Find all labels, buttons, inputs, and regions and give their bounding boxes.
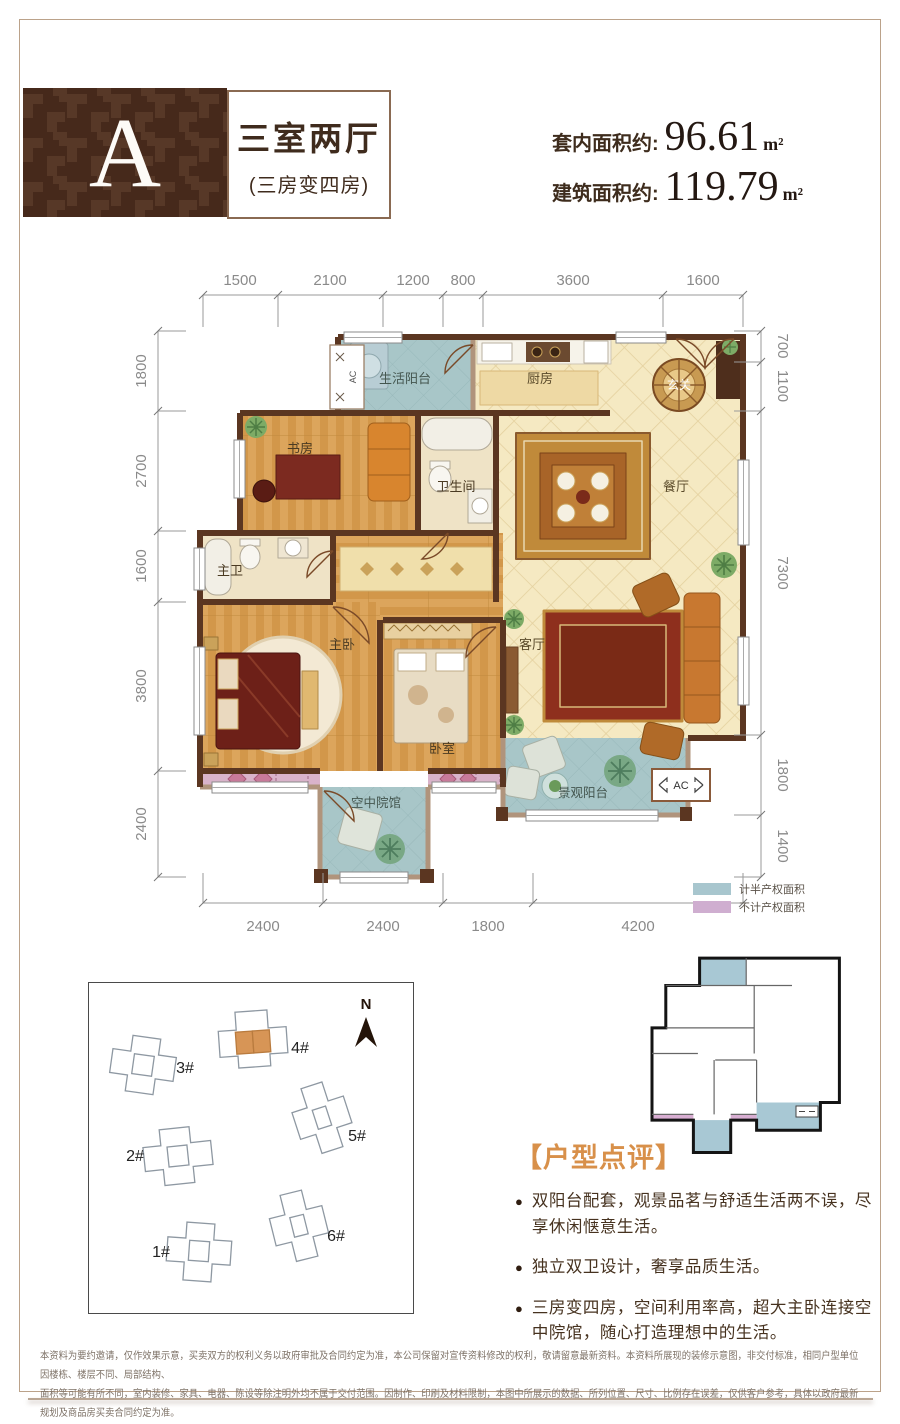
mini-floorplan bbox=[640, 946, 870, 1158]
dim-bottom-3: 4200 bbox=[621, 918, 654, 935]
building-label-1: 1# bbox=[152, 1244, 170, 1261]
ac-label: AC bbox=[673, 780, 688, 792]
dim-right-1: 1100 bbox=[774, 370, 790, 402]
room-label-bedroom: 卧室 bbox=[429, 741, 455, 756]
building-label-6: 6# bbox=[327, 1228, 345, 1245]
dim-left-0: 1800 bbox=[133, 354, 150, 387]
dim-top-2: 1200 bbox=[396, 272, 429, 289]
sink bbox=[472, 498, 488, 514]
review-bullet-text: 双阳台配套，观景品茗与舒适生活两不误，尽享休闲惬意生活。 bbox=[532, 1189, 883, 1240]
ac-box-bottom-right: AC bbox=[652, 769, 710, 801]
master-sink bbox=[285, 540, 301, 556]
building-2 bbox=[141, 1125, 214, 1188]
review-bullet-1: ● 双阳台配套，观景品茗与舒适生活两不误，尽享休闲惬意生活。 bbox=[515, 1189, 883, 1240]
unit-badge: A bbox=[23, 88, 227, 217]
legend-label: 计半产权面积 bbox=[739, 881, 805, 897]
building-label-3: 3# bbox=[176, 1060, 194, 1077]
legend-swatch-blue bbox=[693, 883, 731, 895]
north-label: N bbox=[361, 996, 372, 1013]
dim-bottom-1: 2400 bbox=[366, 918, 399, 935]
area-info: 套内面积约: 96.61 m² 建筑面积约: 119.79 m² bbox=[552, 116, 803, 216]
dim-right-0: 700 bbox=[774, 333, 790, 358]
mini-fills bbox=[652, 958, 820, 1153]
disclaimer: 本资料为要约邀请，仅作效果示意，买卖双方的权利义务以政府审批及合同约定为准，本公… bbox=[40, 1347, 864, 1423]
dim-left-1: 2700 bbox=[133, 454, 150, 487]
review-bullet-text: 三房变四房，空间利用率高，超大主卧连接空中院馆，随心打造理想中的生活。 bbox=[532, 1296, 883, 1347]
ac-label: AC bbox=[348, 370, 358, 383]
dim-top-0: 1500 bbox=[223, 272, 256, 289]
study-sofa bbox=[368, 423, 410, 501]
legend-row-half-property: 计半产权面积 bbox=[693, 880, 805, 898]
dim-right-3: 1800 bbox=[774, 758, 790, 791]
dim-bottom-2: 1800 bbox=[471, 918, 504, 935]
layout-title: 三室两厅 bbox=[237, 112, 381, 160]
building-3 bbox=[107, 1033, 178, 1097]
disclaimer-line-2: 面积等可能有所不同，室内装修、家具、电器、陈设等除注明外均不属于交付范围。因制作… bbox=[40, 1385, 864, 1423]
dining-set bbox=[516, 433, 650, 559]
review-bullet-text: 独立双卫设计，奢享品质生活。 bbox=[532, 1255, 770, 1281]
dim-left-3: 3800 bbox=[133, 669, 150, 702]
dim-left-2: 1600 bbox=[133, 549, 150, 582]
room-label-life-balcony: 生活阳台 bbox=[379, 371, 431, 386]
room-label-bathroom: 卫生间 bbox=[436, 479, 475, 494]
gross-area-row: 建筑面积约: 119.79 m² bbox=[552, 166, 803, 214]
study-desk bbox=[276, 455, 340, 499]
dim-top-1: 2100 bbox=[313, 272, 346, 289]
unit-letter: A bbox=[23, 88, 227, 217]
gross-area-unit: m² bbox=[783, 184, 803, 205]
room-label-kitchen: 厨房 bbox=[527, 371, 553, 386]
siteplan-drawing: 3# 4# 5# 2# 6# 1# N bbox=[89, 983, 411, 1311]
bottom-divider bbox=[28, 1398, 873, 1400]
bathtub bbox=[422, 418, 492, 450]
inner-area-value: 96.61 bbox=[665, 116, 760, 158]
floorplan-poster: A 三室两厅 (三房变四房) 套内面积约: 96.61 m² 建筑面积约: 11… bbox=[0, 0, 900, 1424]
building-label-5: 5# bbox=[348, 1128, 366, 1145]
layout-subtitle: (三房变四房) bbox=[249, 169, 369, 198]
title-box: 三室两厅 (三房变四房) bbox=[227, 90, 391, 219]
legend-label: 不计产权面积 bbox=[739, 899, 805, 915]
corridor-runner bbox=[340, 547, 492, 591]
room-label-study: 书房 bbox=[287, 441, 313, 456]
dim-left-4: 2400 bbox=[133, 807, 150, 840]
room-label-entry: 玄关 bbox=[667, 377, 691, 392]
room-label-dining: 餐厅 bbox=[663, 479, 689, 494]
building-label-2: 2# bbox=[126, 1148, 144, 1165]
building-4 bbox=[217, 1009, 289, 1070]
inner-area-row: 套内面积约: 96.61 m² bbox=[552, 116, 803, 164]
north-compass: N bbox=[355, 996, 377, 1047]
review-section: 【户型点评】 ● 双阳台配套，观景品茗与舒适生活两不误，尽享休闲惬意生活。 ● … bbox=[515, 1136, 883, 1362]
legend-swatch-pink bbox=[693, 901, 731, 913]
dim-top-4: 3600 bbox=[556, 272, 589, 289]
dim-right-2: 7300 bbox=[774, 556, 790, 589]
building-1 bbox=[165, 1221, 233, 1283]
room-label-living: 客厅 bbox=[519, 637, 545, 652]
dim-top-3: 800 bbox=[450, 272, 475, 289]
room-label-master-bedroom: 主卧 bbox=[329, 637, 355, 652]
room-label-master-bath: 主卫 bbox=[217, 563, 243, 578]
floorplan-drawing: AC AC 生活阳台 厨房 玄关 书房 卫生间 餐厅 主卫 主卧 卧室 客厅 空… bbox=[128, 255, 790, 975]
siteplan: 3# 4# 5# 2# 6# 1# N bbox=[88, 982, 414, 1314]
legend-row-no-property: 不计产权面积 bbox=[693, 898, 805, 916]
bullet-icon: ● bbox=[515, 1299, 523, 1347]
bullet-icon: ● bbox=[515, 1192, 523, 1240]
inner-area-unit: m² bbox=[763, 134, 783, 155]
ac-box-balcony: AC bbox=[330, 345, 364, 409]
review-bullet-3: ● 三房变四房，空间利用率高，超大主卧连接空中院馆，随心打造理想中的生活。 bbox=[515, 1296, 883, 1347]
inner-area-label: 套内面积约: bbox=[552, 127, 659, 156]
gross-area-label: 建筑面积约: bbox=[552, 177, 659, 206]
building-5 bbox=[286, 1077, 358, 1158]
dim-right-4: 1400 bbox=[774, 829, 790, 862]
legend: 计半产权面积 不计产权面积 bbox=[693, 880, 805, 916]
room-label-view-balcony: 景观阳台 bbox=[558, 785, 608, 800]
bullet-icon: ● bbox=[515, 1258, 523, 1281]
dim-top-5: 1600 bbox=[686, 272, 719, 289]
dim-bottom-0: 2400 bbox=[246, 918, 279, 935]
room-label-sky-courtyard: 空中院馆 bbox=[351, 795, 401, 810]
review-title: 【户型点评】 bbox=[515, 1136, 883, 1175]
review-bullet-2: ● 独立双卫设计，奢享品质生活。 bbox=[515, 1255, 883, 1281]
building-label-4: 4# bbox=[291, 1040, 309, 1057]
building-6 bbox=[265, 1186, 334, 1265]
gross-area-value: 119.79 bbox=[665, 166, 779, 208]
disclaimer-line-1: 本资料为要约邀请，仅作效果示意，买卖双方的权利义务以政府审批及合同约定为准，本公… bbox=[40, 1347, 864, 1385]
